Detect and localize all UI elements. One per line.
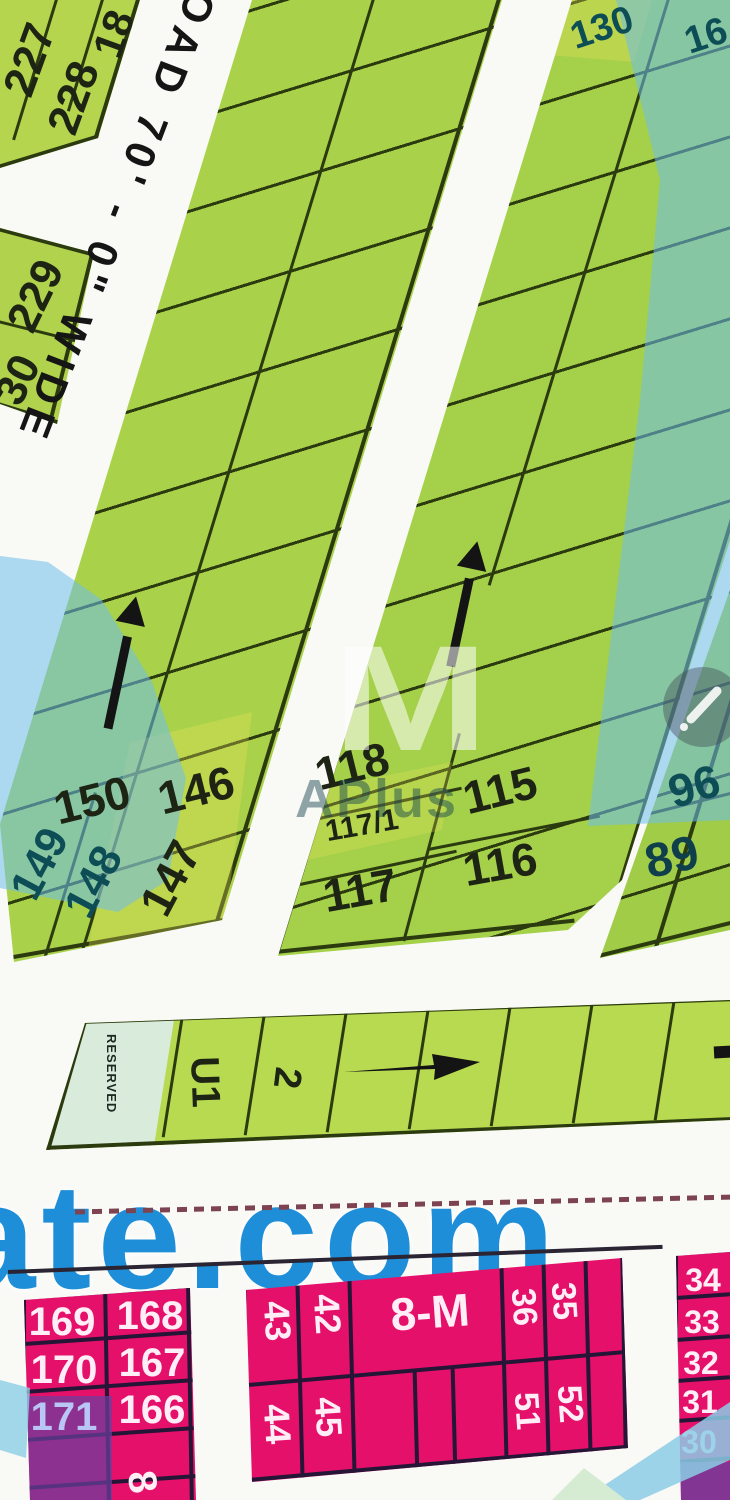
plot-label-117: 117 (319, 861, 400, 919)
plot-label-45: 45 (309, 1396, 348, 1438)
plot-label-43: 43 (258, 1300, 297, 1342)
plot-label-169: 169 (29, 1302, 96, 1342)
reserved-label: RESERVED (104, 1034, 119, 1142)
plot-label-34: 34 (685, 1264, 721, 1296)
plot-label-31: 31 (682, 1386, 718, 1418)
plot-label-51: 51 (509, 1391, 546, 1431)
edit-pencil-icon (663, 667, 730, 747)
plot-label-32: 32 (683, 1347, 719, 1379)
map-viewport[interactable]: OAD 70' - 0" WIDE 227 228 18 229 30 130 … (0, 0, 730, 1500)
plot-label-44: 44 (258, 1403, 297, 1445)
plot-label-116: 116 (459, 835, 540, 893)
direction-arrow-icon (342, 1044, 492, 1088)
plot-label-36: 36 (506, 1287, 543, 1327)
plot-label-33: 33 (684, 1306, 720, 1338)
plot-label-35: 35 (546, 1281, 583, 1321)
plot-label-166: 166 (119, 1390, 186, 1430)
block-label-8m: 8-M (389, 1286, 471, 1337)
watermark-brand: APlus (295, 768, 458, 830)
plot-label-89: 89 (641, 829, 703, 887)
plot-label-167: 167 (119, 1343, 186, 1383)
watermark-logo: M (332, 612, 488, 785)
plot-label-52: 52 (552, 1384, 589, 1424)
direction-arrow-icon (714, 1046, 730, 1059)
plot-label-u1: U1 (184, 1056, 226, 1109)
plot-label-2: 2 (267, 1065, 307, 1091)
plot-label-171: 171 (31, 1397, 98, 1437)
plot-label-168: 168 (117, 1296, 184, 1336)
plot-label-42: 42 (308, 1293, 347, 1335)
edit-button[interactable] (663, 667, 730, 747)
plot-label-170: 170 (31, 1350, 98, 1390)
